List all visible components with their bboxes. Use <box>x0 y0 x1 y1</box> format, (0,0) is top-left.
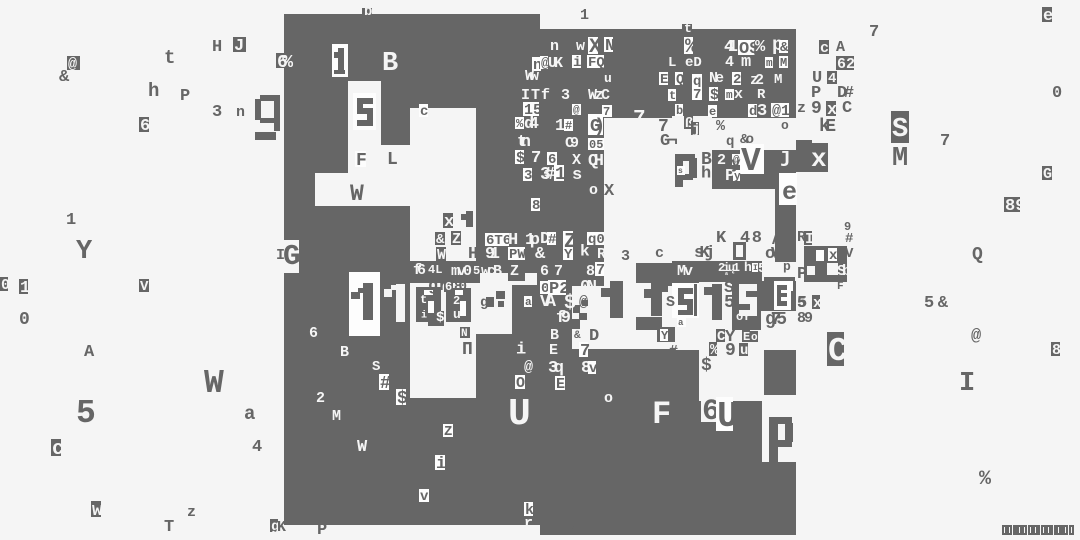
svg-text:C: C <box>842 99 852 118</box>
svg-text:K: K <box>716 229 727 248</box>
svg-text:3: 3 <box>757 102 767 121</box>
svg-text:1: 1 <box>20 279 30 298</box>
svg-text:o: o <box>604 390 613 407</box>
svg-text:i: i <box>421 310 427 322</box>
svg-text:M: M <box>774 72 782 88</box>
svg-text:3: 3 <box>524 168 532 184</box>
svg-text:@: @ <box>68 56 77 73</box>
svg-text:Y: Y <box>564 247 573 263</box>
svg-text:FQ: FQ <box>588 55 605 71</box>
svg-text:&: & <box>59 68 70 87</box>
svg-text:o: o <box>781 118 789 133</box>
svg-text:k: k <box>580 243 590 261</box>
svg-text:m: m <box>766 58 773 70</box>
svg-text:n: n <box>236 104 245 121</box>
svg-text:Z: Z <box>510 263 519 280</box>
svg-text:M: M <box>780 56 787 70</box>
svg-text:1: 1 <box>555 165 566 185</box>
svg-text:5 &: 5 & <box>924 294 949 313</box>
svg-text:R: R <box>757 87 766 103</box>
svg-text:x: x <box>444 213 454 232</box>
svg-text:n: n <box>550 38 559 55</box>
svg-text:$: $ <box>710 87 719 104</box>
svg-text:q: q <box>726 134 734 150</box>
svg-text:G: G <box>1043 166 1052 183</box>
svg-text:&: & <box>574 330 581 342</box>
svg-text:5: 5 <box>76 395 96 432</box>
svg-text:%: % <box>716 118 726 135</box>
svg-text:C9: C9 <box>565 135 579 152</box>
svg-text:C: C <box>828 333 848 370</box>
svg-text:4: 4 <box>828 71 836 87</box>
svg-text:x: x <box>813 295 822 312</box>
svg-text:6: 6 <box>140 117 150 136</box>
svg-text:Π: Π <box>462 340 473 360</box>
svg-text:S: S <box>372 359 380 375</box>
svg-text:7: 7 <box>693 87 701 103</box>
svg-text:wcB: wcB <box>481 263 502 280</box>
svg-text:E: E <box>660 72 668 88</box>
svg-text:ITf 3: ITf 3 <box>521 87 570 104</box>
svg-text:%: % <box>516 117 524 131</box>
svg-text:05: 05 <box>589 138 603 152</box>
svg-text:W: W <box>204 365 224 402</box>
svg-text:u: u <box>453 307 461 322</box>
svg-text:O: O <box>516 375 525 392</box>
svg-text:I: I <box>959 369 975 399</box>
svg-text:K: K <box>277 519 286 536</box>
svg-text:x: x <box>811 144 827 174</box>
svg-text:a: a <box>525 297 532 309</box>
svg-text:B: B <box>382 49 398 79</box>
svg-text:1: 1 <box>580 7 589 24</box>
svg-text:@: @ <box>971 327 981 346</box>
svg-text:M: M <box>332 408 341 425</box>
svg-text:J: J <box>234 37 244 56</box>
svg-text:i: i <box>436 455 446 474</box>
svg-text:5: 5 <box>473 264 480 278</box>
svg-text:i: i <box>516 340 526 359</box>
svg-text:Sb: Sb <box>837 263 851 280</box>
svg-text:x: x <box>734 86 743 103</box>
svg-text:i: i <box>573 55 581 71</box>
svg-text:A: A <box>84 343 95 362</box>
svg-text:#: # <box>669 343 678 360</box>
svg-text:#: # <box>565 119 572 133</box>
svg-text:9: 9 <box>811 99 822 119</box>
svg-text:W: W <box>357 438 368 457</box>
svg-text:o: o <box>589 182 598 199</box>
svg-text:w: w <box>92 501 103 521</box>
svg-text:Q: Q <box>676 72 684 88</box>
svg-text:mv0: mv0 <box>451 263 472 280</box>
svg-text:2: 2 <box>453 294 460 308</box>
svg-text:v: v <box>568 519 577 536</box>
svg-text:2: 2 <box>316 390 325 407</box>
svg-text:$: $ <box>436 310 444 326</box>
svg-text:j: j <box>692 122 700 138</box>
svg-text:R: R <box>597 246 606 263</box>
svg-text:t: t <box>684 21 692 36</box>
svg-text:W: W <box>350 181 364 207</box>
svg-text:c: c <box>52 438 64 461</box>
svg-text:$: $ <box>701 356 712 376</box>
svg-text:1: 1 <box>555 117 565 136</box>
svg-text:E: E <box>556 376 565 393</box>
svg-text:%: % <box>979 468 992 491</box>
svg-text:b: b <box>364 4 372 20</box>
svg-text:a: a <box>678 318 684 328</box>
svg-text:9: 9 <box>725 341 736 361</box>
svg-text:#: # <box>380 374 391 394</box>
svg-text:P: P <box>317 521 327 540</box>
svg-text:0: 0 <box>1052 84 1062 103</box>
svg-text:f6: f6 <box>413 262 426 279</box>
svg-text:B: B <box>340 344 349 361</box>
svg-text:t: t <box>420 293 427 307</box>
svg-text:E: E <box>549 342 558 359</box>
svg-text:&: & <box>780 40 789 56</box>
svg-text:c: c <box>420 104 428 120</box>
svg-text:7: 7 <box>869 23 879 42</box>
svg-text:0: 0 <box>19 310 30 330</box>
svg-text:U: U <box>717 396 739 437</box>
svg-text:#: # <box>548 232 556 248</box>
svg-text:7: 7 <box>940 132 950 151</box>
svg-text:4: 4 <box>725 54 734 71</box>
svg-text:Q: Q <box>972 245 983 265</box>
svg-text:$: $ <box>516 150 525 167</box>
svg-text:&: & <box>436 232 445 248</box>
svg-text:L: L <box>668 55 676 71</box>
svg-text:h: h <box>744 260 752 275</box>
svg-text:Ww: Ww <box>525 68 539 85</box>
svg-text:7: 7 <box>658 117 669 137</box>
svg-text:4L: 4L <box>428 263 442 277</box>
svg-text:@: @ <box>573 105 580 117</box>
svg-text:P: P <box>180 87 190 106</box>
svg-text:r: r <box>524 515 533 532</box>
svg-text:b: b <box>676 104 683 118</box>
svg-text:S: S <box>666 294 675 311</box>
svg-text:D: D <box>589 327 599 346</box>
svg-text:Y: Y <box>661 329 669 343</box>
svg-text:t: t <box>164 47 175 69</box>
svg-text:m: m <box>726 90 733 102</box>
svg-text:c: c <box>655 245 664 262</box>
svg-text:PW: PW <box>509 247 526 263</box>
svg-text:7: 7 <box>633 108 646 131</box>
svg-text:z: z <box>797 100 806 117</box>
svg-text:6 7: 6 7 <box>540 263 563 280</box>
svg-text:VA: VA <box>540 293 557 312</box>
svg-text:s: s <box>678 167 683 176</box>
svg-text:x: x <box>829 248 838 264</box>
svg-text:z: z <box>187 504 196 521</box>
svg-text:%: % <box>755 38 766 57</box>
svg-text:L: L <box>387 150 398 170</box>
svg-text:Z: Z <box>452 231 461 248</box>
svg-text:j: j <box>780 146 792 169</box>
svg-text:@: @ <box>579 294 588 311</box>
svg-text:f9: f9 <box>556 309 571 328</box>
svg-text:80: 80 <box>454 279 467 295</box>
svg-text:8: 8 <box>1052 342 1061 359</box>
svg-text:sKj: sKj <box>694 244 715 263</box>
svg-text:A: A <box>836 39 845 56</box>
svg-text:3#: 3# <box>540 165 555 185</box>
svg-text:4 8: 4 8 <box>740 229 762 248</box>
svg-text:QH: QH <box>588 152 604 171</box>
svg-text:89: 89 <box>1005 197 1025 216</box>
svg-text:v: v <box>420 489 429 505</box>
svg-text:e: e <box>709 105 716 119</box>
svg-text:G): G) <box>590 117 605 137</box>
svg-text:w: w <box>576 38 585 55</box>
svg-text:Y: Y <box>76 237 93 267</box>
svg-text:y: y <box>731 155 741 173</box>
svg-text:oY: oY <box>736 310 751 324</box>
svg-text:Z: Z <box>444 424 452 440</box>
svg-text:Ne: Ne <box>709 70 724 87</box>
svg-text:N: N <box>605 37 615 56</box>
svg-text:V: V <box>741 143 761 180</box>
svg-text:o: o <box>751 332 758 344</box>
svg-text:d4: d4 <box>524 115 539 134</box>
svg-text:3: 3 <box>212 103 222 122</box>
svg-text:5: 5 <box>758 261 766 277</box>
svg-text:N: N <box>461 328 468 340</box>
svg-text:t: t <box>669 89 676 103</box>
svg-text:V: V <box>845 246 854 262</box>
svg-text:@: @ <box>524 359 533 376</box>
svg-text:3: 3 <box>621 248 630 265</box>
svg-text:Mv: Mv <box>677 263 693 280</box>
svg-text:UK: UK <box>548 55 563 72</box>
svg-text:WzC: WzC <box>588 87 610 104</box>
svg-text:H: H <box>468 245 478 264</box>
svg-text:4: 4 <box>252 438 262 457</box>
svg-text:g75: g75 <box>765 310 787 330</box>
svg-text:&: & <box>535 245 546 264</box>
svg-text:V: V <box>140 279 149 295</box>
svg-text:e: e <box>1043 7 1053 26</box>
svg-text:E: E <box>743 330 750 344</box>
svg-text:U: U <box>508 393 531 436</box>
svg-text:a: a <box>244 403 255 425</box>
svg-text:h: h <box>148 80 159 102</box>
svg-text:F: F <box>652 396 671 433</box>
svg-text:s: s <box>572 166 582 185</box>
svg-text:T: T <box>164 518 174 537</box>
svg-text:I: I <box>805 231 814 248</box>
svg-text:M: M <box>892 144 908 174</box>
svg-text:F: F <box>837 281 844 293</box>
svg-text:S: S <box>892 115 908 145</box>
svg-text:F: F <box>356 151 367 171</box>
svg-text:6: 6 <box>309 325 318 342</box>
svg-text:9: 9 <box>844 220 851 234</box>
svg-text:W: W <box>437 247 446 264</box>
svg-text:g: g <box>480 295 488 311</box>
svg-text:m: m <box>741 53 751 72</box>
svg-text:P: P <box>797 265 807 284</box>
svg-text:2ių1: 2ių1 <box>718 261 740 275</box>
svg-text:u: u <box>604 71 612 86</box>
svg-text:6%: 6% <box>277 53 293 73</box>
svg-text:1: 1 <box>66 211 76 230</box>
svg-text:6: 6 <box>445 280 452 294</box>
svg-text:H: H <box>212 38 222 57</box>
svg-text:62: 62 <box>837 56 855 73</box>
svg-text:0: 0 <box>1 277 10 294</box>
svg-text:h: h <box>701 164 711 183</box>
svg-text:c: c <box>820 40 829 57</box>
svg-text:kE: kE <box>819 117 836 137</box>
svg-text:p: p <box>783 259 791 274</box>
svg-text:$: $ <box>397 389 408 409</box>
svg-text:91: 91 <box>485 245 500 264</box>
svg-text:v: v <box>589 361 598 377</box>
svg-text:8: 8 <box>532 198 540 214</box>
svg-text:eD: eD <box>685 55 702 71</box>
svg-text:5: 5 <box>724 293 735 313</box>
svg-text:7: 7 <box>596 262 605 279</box>
svg-text:u: u <box>740 343 748 359</box>
svg-text:5: 5 <box>797 294 807 313</box>
svg-text:G: G <box>283 240 300 273</box>
svg-text:e: e <box>782 178 797 207</box>
svg-text:X: X <box>604 182 615 201</box>
